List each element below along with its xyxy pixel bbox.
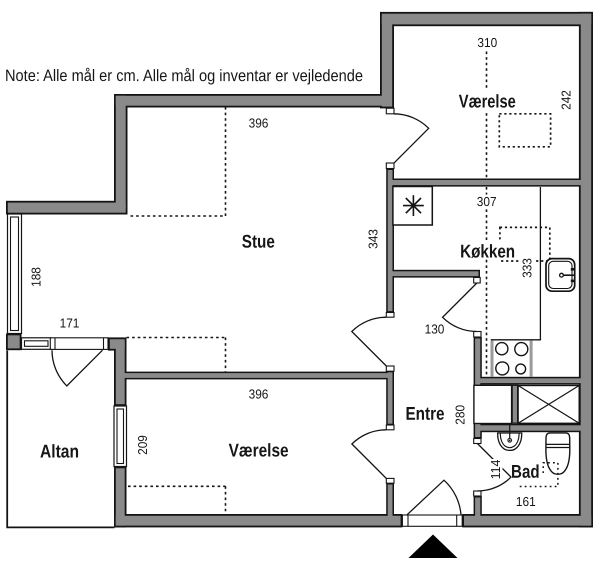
svg-text:Bad: Bad — [511, 461, 540, 482]
svg-text:307: 307 — [477, 194, 497, 209]
svg-text:Værelse: Værelse — [459, 90, 516, 111]
svg-text:280: 280 — [452, 405, 467, 425]
svg-text:161: 161 — [516, 494, 536, 509]
svg-text:Altan: Altan — [40, 440, 79, 461]
svg-text:396: 396 — [249, 115, 269, 130]
svg-text:114: 114 — [488, 460, 503, 480]
svg-text:343: 343 — [366, 229, 381, 249]
svg-text:Note: Alle mål er cm. Alle mål: Note: Alle mål er cm. Alle mål og invent… — [5, 67, 363, 85]
svg-text:242: 242 — [559, 90, 574, 110]
svg-text:Stue: Stue — [242, 231, 275, 252]
svg-text:130: 130 — [425, 321, 445, 336]
svg-text:310: 310 — [477, 35, 497, 50]
svg-text:188: 188 — [29, 267, 44, 287]
svg-text:Køkken: Køkken — [460, 240, 515, 261]
svg-text:171: 171 — [60, 315, 80, 330]
svg-text:396: 396 — [249, 386, 269, 401]
svg-text:333: 333 — [520, 258, 535, 278]
svg-text:209: 209 — [135, 435, 150, 455]
svg-text:Entre: Entre — [405, 403, 444, 424]
svg-text:Værelse: Værelse — [229, 439, 289, 460]
